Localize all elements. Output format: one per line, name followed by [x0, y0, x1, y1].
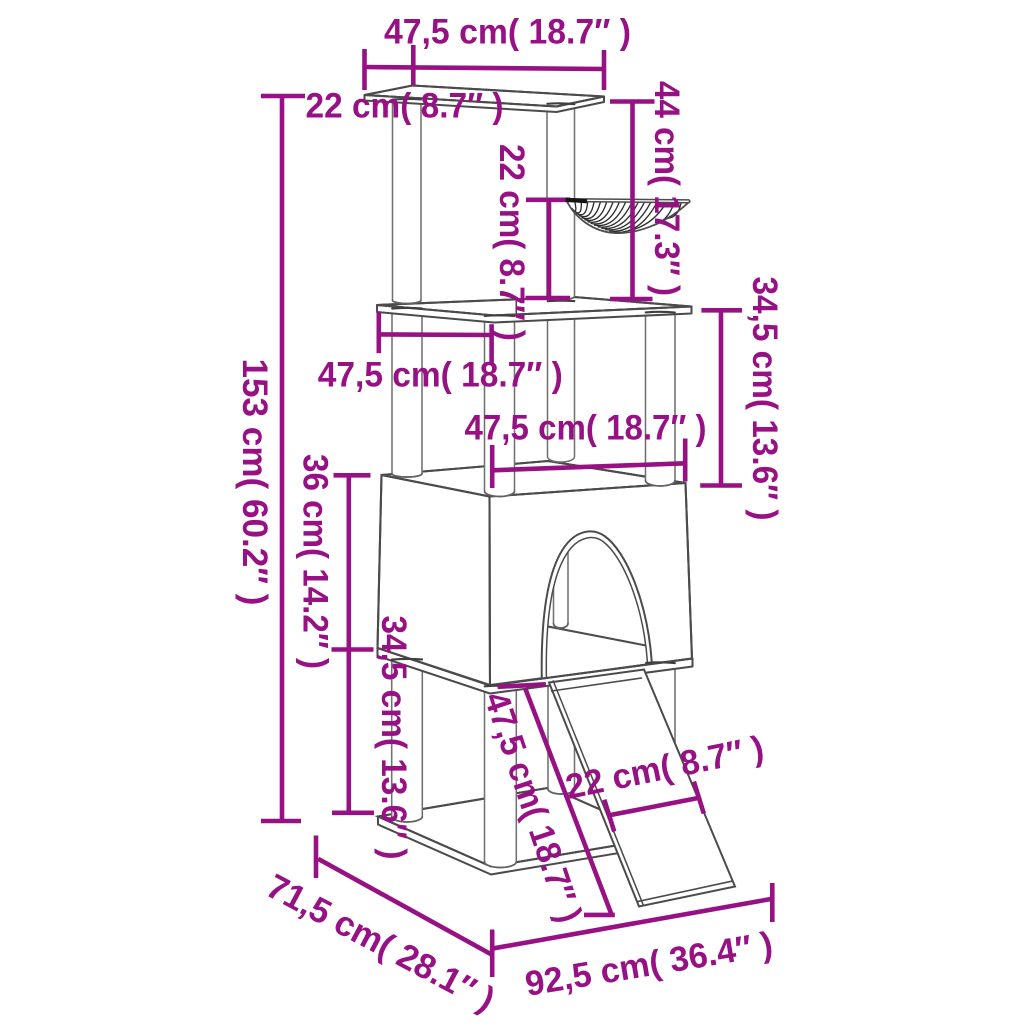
svg-text:34,5 cm( 13.6″ ): 34,5 cm( 13.6″ ) — [745, 277, 784, 521]
svg-text:36 cm( 14.2″ ): 36 cm( 14.2″ ) — [295, 454, 334, 669]
svg-text:47,5 cm( 18.7″ ): 47,5 cm( 18.7″ ) — [384, 12, 631, 51]
svg-text:47,5 cm( 18.7″ ): 47,5 cm( 18.7″ ) — [318, 355, 563, 394]
svg-text:22 cm( 8.7″ ): 22 cm( 8.7″ ) — [306, 87, 504, 126]
svg-text:34,5 cm( 13.6″ ): 34,5 cm( 13.6″ ) — [374, 616, 413, 860]
svg-text:44 cm( 17.3″ ): 44 cm( 17.3″ ) — [647, 81, 686, 296]
svg-text:153 cm( 60.2″ ): 153 cm( 60.2″ ) — [235, 359, 274, 606]
svg-text:22 cm( 8.7″ ): 22 cm( 8.7″ ) — [492, 144, 531, 341]
svg-text:47,5 cm( 18.7″ ): 47,5 cm( 18.7″ ) — [465, 409, 707, 448]
